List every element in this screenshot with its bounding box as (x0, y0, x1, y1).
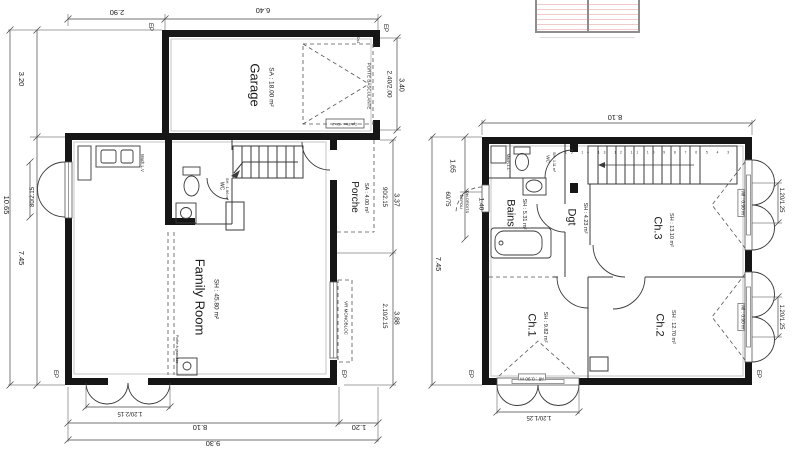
gf-room-garage-name: Garage (249, 63, 262, 106)
ff-dim-left-window: 60/75 (444, 191, 450, 206)
gf-dim-top-640: 6.40 (256, 6, 271, 14)
gf-dishwasher-label: Mach.L.V (140, 154, 144, 172)
gf-room-family-room-area: SH : 45.80 m² (212, 279, 219, 319)
gf-dim-left-320: 3.20 (17, 72, 25, 87)
gf-room-wc-area: SH : 1.66 m² (225, 178, 229, 200)
gf-room-garage-area: SA : 18.00 m² (267, 67, 274, 106)
ff-window-frames (482, 160, 752, 385)
ff-dashed-lines (456, 162, 745, 376)
gf-dim-left-door: 80/2.15 (30, 187, 36, 207)
gf-shutter-label: VR MONOBLOC (343, 301, 348, 335)
ff-dim-bottom-window: 1.20/1.25 (526, 414, 551, 420)
ff-room-ch3-name: Ch.3 (652, 216, 663, 239)
ff-dbl-droits-label: Dbl.DROITS (465, 191, 469, 213)
ff-washer-label: Mach.L.L (506, 154, 510, 170)
ff-room-wc-area: SH : 1.11 m² (551, 152, 555, 172)
ff-door-arcs (497, 150, 775, 406)
gf-room-wc-name: WC (219, 182, 224, 190)
ff-depoli-label: DEPOLI (459, 195, 463, 210)
ff-dim-left-140: 1.40 (477, 198, 484, 211)
gf-room-porch-name: Porche (349, 181, 359, 213)
ff-sill-label-right-2: All : 0.90 m (738, 303, 745, 331)
ff-room-ch1-area: SH : 9.82 m² (541, 312, 547, 343)
gf-dim-entry-door: 1.20/2.15 (117, 410, 142, 416)
gf-dim-right-388: 3.88 (393, 311, 400, 325)
gf-pellet-stove-label: Poêle à granulés (174, 335, 178, 364)
gf-dim-left-745: 7.45 (17, 251, 25, 266)
gf-dim-garage-door: 2.40/2.00 (385, 70, 392, 97)
gf-door-arcs (37, 142, 330, 404)
gf-ep-bottom-right: EP (340, 370, 346, 378)
ff-dim-top-810: 8.10 (608, 113, 623, 121)
ff-light-inner-outline (491, 146, 743, 376)
ff-sill-label-bottom: All : 0.90 m (518, 374, 546, 381)
ff-dim-right-window-2: 1.20/1.25 (778, 304, 784, 329)
gf-dsj-label: DsJ (355, 37, 359, 44)
ff-ep-bottom-left: EP (467, 370, 473, 378)
ff-dim-right-window-1: 1.20/1.25 (778, 187, 784, 212)
ff-stair-arrow-head (598, 162, 605, 168)
ff-room-ch1-name: Ch.1 (526, 313, 537, 336)
ff-stair-numbers: 15 14 13 12 11 10 9 8 7 6 5 4 3 (565, 151, 733, 154)
ff-walls (482, 137, 752, 385)
ff-room-wc-name: WC (545, 155, 550, 163)
gf-electric-panel-label: Cpt.Elec.+DisJ (332, 121, 357, 125)
gf-dim-top-290: 2.90 (110, 8, 125, 16)
ff-dim-left-745: 7.45 (434, 257, 442, 272)
ff-sill-label-right-1: All : 0.90 m (738, 189, 745, 217)
ff-room-ch3-area: SH : 13.10 m² (667, 213, 673, 247)
gf-dim-bottom-930: 9.30 (206, 439, 221, 447)
ff-window-glazing (512, 175, 751, 384)
gf-dim-right-window: 2.10/2.15 (381, 303, 387, 328)
floor-plan-drawing (0, 0, 800, 456)
gf-fixtures (78, 146, 200, 375)
gf-room-porch-area: SA : 4.00 m² (362, 183, 368, 213)
floor-plan-sheet: Garage SA : 18.00 m² Family Room SH : 45… (0, 0, 800, 456)
gf-light-inner-outline (74, 39, 371, 374)
gf-garage-door-label: PORTE BASCULANTE (366, 63, 371, 110)
gf-dim-right-door: 90/2.15 (381, 187, 387, 207)
gf-ep-top-right: EP (382, 24, 388, 32)
gf-dim-right-337: 3.37 (393, 193, 400, 207)
gf-ep-top-left: EP (147, 23, 153, 31)
ff-ep-bottom-right: EP (755, 370, 761, 378)
ff-thin-lines (489, 144, 745, 378)
gf-dim-bottom-120: 1.20 (352, 423, 367, 431)
gf-dim-left-1065: 10.65 (2, 196, 10, 215)
gf-dim-garage-340: 3.40 (398, 78, 405, 92)
gf-ep-bottom-left: EP (52, 370, 58, 378)
ff-room-ch2-area: SH : 12.70 m² (669, 310, 675, 344)
ff-room-dgt-name: Dgt (566, 208, 577, 225)
ff-dim-left-165: 1.65 (449, 159, 456, 173)
ff-room-bains-area: SH : 5.31 m² (520, 199, 526, 230)
ff-room-dgt-area: SH : 4.23 m² (581, 203, 587, 234)
gf-dim-bottom-810: 8.10 (193, 423, 208, 431)
ff-room-ch2-name: Ch.2 (654, 313, 665, 336)
ff-room-bains-name: Bains (505, 199, 516, 227)
gf-room-family-room-name: Family Room (194, 259, 207, 336)
